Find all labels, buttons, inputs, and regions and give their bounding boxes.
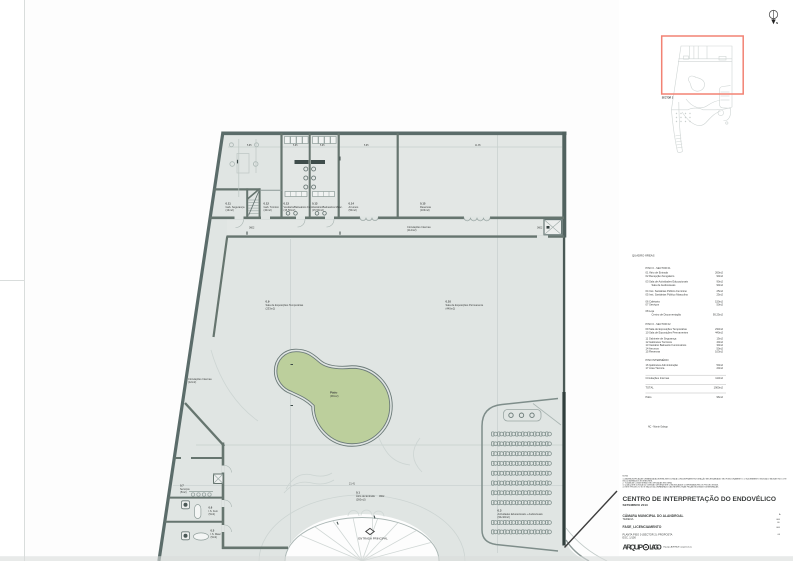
svg-text:Átrio de Entrada: Átrio de Entrada	[356, 494, 375, 498]
svg-text:Centro de Documentação: Centro de Documentação	[652, 312, 682, 316]
svg-text:(96m2): (96m2)	[330, 394, 339, 398]
svg-text:N: N	[776, 21, 778, 25]
svg-text:(103m2): (103m2)	[420, 208, 430, 212]
svg-text:(50m2): (50m2)	[349, 208, 357, 212]
svg-text:(5m2): (5m2)	[211, 536, 218, 539]
svg-text:Equipa AVENUE arquitectura: Equipa AVENUE arquitectura	[664, 546, 693, 549]
svg-text:103m2: 103m2	[715, 350, 723, 354]
svg-text:QUADRO ÁREAS: QUADRO ÁREAS	[632, 253, 655, 257]
svg-text:LAGO: LAGO	[649, 543, 662, 552]
svg-text:ENTRADA PRINCIPAL: ENTRADA PRINCIPAL	[358, 536, 388, 540]
svg-text:(40m2): (40m2)	[264, 208, 272, 212]
svg-text:Sala de Audiovisuais: Sala de Audiovisuais	[652, 283, 677, 287]
svg-text:PISO 0 - SECTOR 01: PISO 0 - SECTOR 01	[646, 266, 672, 270]
svg-text:4. ESTE PROJECTO SÓ É VÁLIDO A: 4. ESTE PROJECTO SÓ É VÁLIDO ACOMPANHADO…	[623, 486, 720, 489]
svg-text:5.95: 5.95	[320, 145, 325, 147]
svg-text:0602: 0602	[249, 227, 255, 230]
svg-text:TOTAL: TOTAL	[646, 386, 655, 390]
svg-text:PLANTA PISO 0 (SECTOR 2): PROP: PLANTA PISO 0 (SECTOR 2): PROPOSTA	[623, 532, 673, 536]
svg-text:96m2: 96m2	[717, 395, 724, 399]
svg-text:1900m2: 1900m2	[714, 386, 724, 390]
svg-text:5.95: 5.95	[364, 145, 369, 147]
svg-text:SETEMBRO 2013: SETEMBRO 2013	[623, 503, 649, 507]
svg-text:440m2: 440m2	[715, 330, 723, 334]
svg-text:07 Serviços: 07 Serviços	[646, 303, 660, 307]
svg-text:20m2: 20m2	[717, 366, 724, 370]
svg-text:(5m2): (5m2)	[209, 513, 216, 516]
svg-text:(90+90m2): (90+90m2)	[498, 516, 510, 519]
svg-text:5.95: 5.95	[293, 145, 298, 147]
svg-text:90m2: 90m2	[717, 274, 724, 278]
svg-text:11.35: 11.35	[475, 145, 481, 147]
svg-text:CENTRO DE INTERPRETAÇÃO DO END: CENTRO DE INTERPRETAÇÃO DO ENDOVÉLICO	[623, 494, 777, 503]
svg-text:90m2: 90m2	[717, 283, 724, 287]
svg-text:50m2: 50m2	[717, 303, 724, 307]
svg-text:02 Recepção /bengaleiro: 02 Recepção /bengaleiro	[646, 274, 675, 278]
svg-text:5.95: 5.95	[247, 145, 252, 147]
svg-text:0602: 0602	[537, 227, 543, 230]
svg-text:(5m2): (5m2)	[180, 491, 187, 494]
svg-text:0.9: 0.9	[266, 300, 270, 304]
svg-text:0.10: 0.10	[446, 300, 452, 304]
svg-text:(260m2): (260m2)	[356, 497, 366, 501]
svg-text:0.1: 0.1	[356, 491, 360, 495]
svg-text:PISO 0 - SECTOR 02: PISO 0 - SECTOR 02	[646, 322, 672, 326]
svg-text:Pátio: Pátio	[330, 391, 338, 395]
svg-text:TERENA: TERENA	[623, 517, 634, 521]
svg-text:SECTOR 2: SECTOR 2	[662, 97, 674, 99]
svg-text:21.41: 21.41	[349, 483, 356, 486]
svg-text:(13m2): (13m2)	[226, 208, 234, 212]
svg-text:NOTA:: NOTA:	[623, 475, 629, 478]
svg-text:ESC. 1/100: ESC. 1/100	[623, 536, 637, 540]
svg-text:0602: 0602	[379, 495, 385, 498]
svg-text:95.25m2: 95.25m2	[713, 312, 724, 316]
svg-text:(114m2): (114m2)	[407, 228, 417, 232]
svg-text:(15.50m2): (15.50m2)	[312, 208, 324, 212]
svg-text:(233m2): (233m2)	[266, 306, 276, 310]
svg-text:(15.50m2): (15.50m2)	[284, 208, 296, 212]
svg-text:Circulações Internas: Circulações Internas	[646, 376, 670, 380]
svg-text:17 Área Técnica: 17 Área Técnica	[646, 366, 665, 370]
svg-text:ARQUIP: ARQUIP	[623, 543, 644, 552]
svg-text:Pátio: Pátio	[646, 395, 652, 399]
svg-text:10 Sala de Exposições Permanen: 10 Sala de Exposições Permanentes	[646, 330, 689, 334]
svg-text:NC - Monte Galego: NC - Monte Galego	[648, 426, 669, 429]
svg-text:FASE_LICENCIAMENTO: FASE_LICENCIAMENTO	[623, 525, 662, 529]
svg-text:15 Reservas: 15 Reservas	[646, 350, 661, 354]
svg-text:(12m2): (12m2)	[188, 380, 196, 384]
svg-text:(440m2): (440m2)	[446, 306, 456, 310]
svg-text:25m2: 25m2	[717, 292, 724, 296]
svg-text:05 Inst. Sanitárias Público Ma: 05 Inst. Sanitárias Público Masculino	[646, 292, 689, 296]
svg-text:113m2: 113m2	[715, 376, 723, 380]
